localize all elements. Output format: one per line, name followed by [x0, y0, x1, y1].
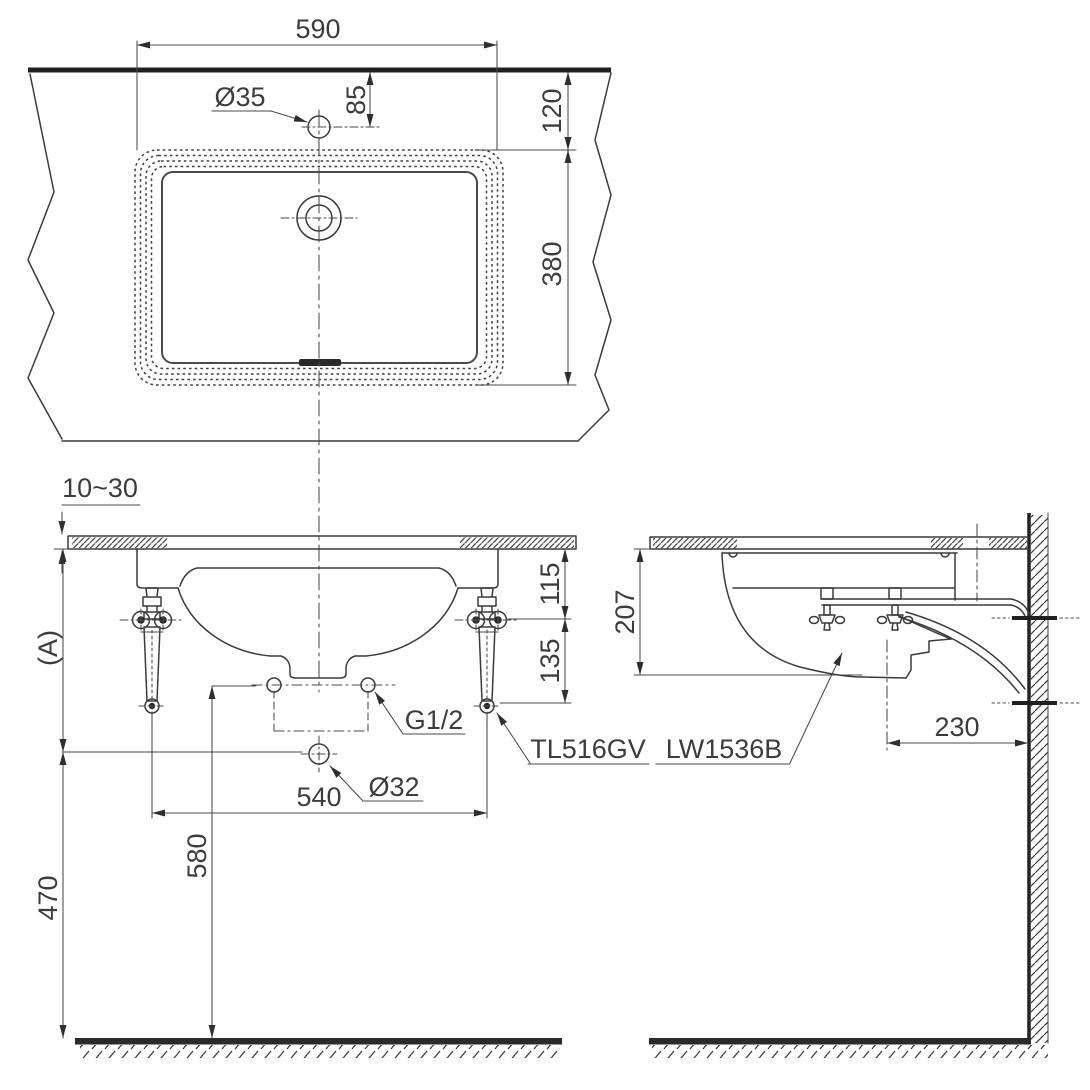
- mounting-bracket: [822, 599, 1029, 693]
- dim-edge-to-rim: 120: [537, 88, 567, 133]
- dim-counter-to-supply: 115: [535, 562, 565, 605]
- break-line-right: [578, 73, 611, 441]
- dim-edge-to-rim-group: 120: [475, 72, 576, 150]
- wall-section: [1029, 513, 1048, 1044]
- dim-floor-to-supply-group: 580: [182, 686, 256, 1038]
- front-view: 10~30 (A) 470 115 135 540: [33, 473, 649, 1058]
- dim-valve-spacing: 540: [296, 782, 341, 812]
- valve-model-label-group: TL516GV: [497, 713, 649, 764]
- dim-counter-height-group: (A) 470: [33, 549, 302, 1038]
- overflow-slot: [299, 359, 341, 366]
- basin-section-front: [137, 549, 498, 678]
- label-faucet-hole-diameter: Ø35: [214, 82, 265, 112]
- side-view: 207 230 LW1536B: [610, 513, 1079, 1058]
- top-view: 590 Ø35 85 120 380: [28, 14, 611, 692]
- counter-section-front: [68, 536, 576, 549]
- drain-pipe-front: [301, 736, 337, 772]
- label-drain-diameter: Ø32: [368, 772, 419, 802]
- dim-counter-thickness: 10~30: [62, 473, 138, 503]
- floor-side: [649, 1038, 1048, 1058]
- break-line-left: [28, 74, 62, 439]
- mounting-bolt-front: [810, 588, 845, 630]
- drain-diameter-label-group: Ø32: [330, 766, 423, 802]
- label-supply-thread: G1/2: [405, 705, 464, 735]
- dim-counter-thickness-group: 10~30: [62, 473, 140, 573]
- dim-drain-to-wall: 230: [934, 712, 979, 742]
- dim-hole-offset-group: 85: [341, 72, 371, 127]
- dim-drain-to-wall-group: 230: [887, 712, 1028, 743]
- dim-rim-width-group: 590: [137, 14, 497, 150]
- dim-supply-heights-group: 115 135: [500, 549, 571, 703]
- dim-rim-depth: 380: [537, 241, 567, 286]
- floor-front: [75, 1038, 562, 1058]
- supply-valve-left: [120, 588, 184, 728]
- dim-counter-height-ref: (A): [33, 630, 63, 666]
- label-valve-model: TL516GV: [530, 734, 646, 764]
- faucet-hole-label-group: Ø35: [212, 82, 307, 122]
- sink-installation-drawing: 590 Ø35 85 120 380: [0, 0, 1090, 1090]
- supply-valve-right: [455, 588, 519, 728]
- dim-rim-width: 590: [295, 14, 340, 44]
- dim-hole-offset: 85: [341, 85, 371, 115]
- label-basin-model: LW1536B: [666, 734, 783, 764]
- dim-floor-to-supply: 580: [182, 833, 212, 878]
- supply-connection-points: [252, 678, 395, 731]
- dim-supply-to-valve-end: 135: [535, 638, 565, 683]
- counter-section-side: [650, 524, 1029, 601]
- supply-thread-label-group: G1/2: [375, 692, 465, 735]
- mounting-bolt-rear: [878, 588, 913, 630]
- dim-floor-to-drain: 470: [33, 875, 63, 920]
- dim-basin-height: 207: [610, 589, 640, 634]
